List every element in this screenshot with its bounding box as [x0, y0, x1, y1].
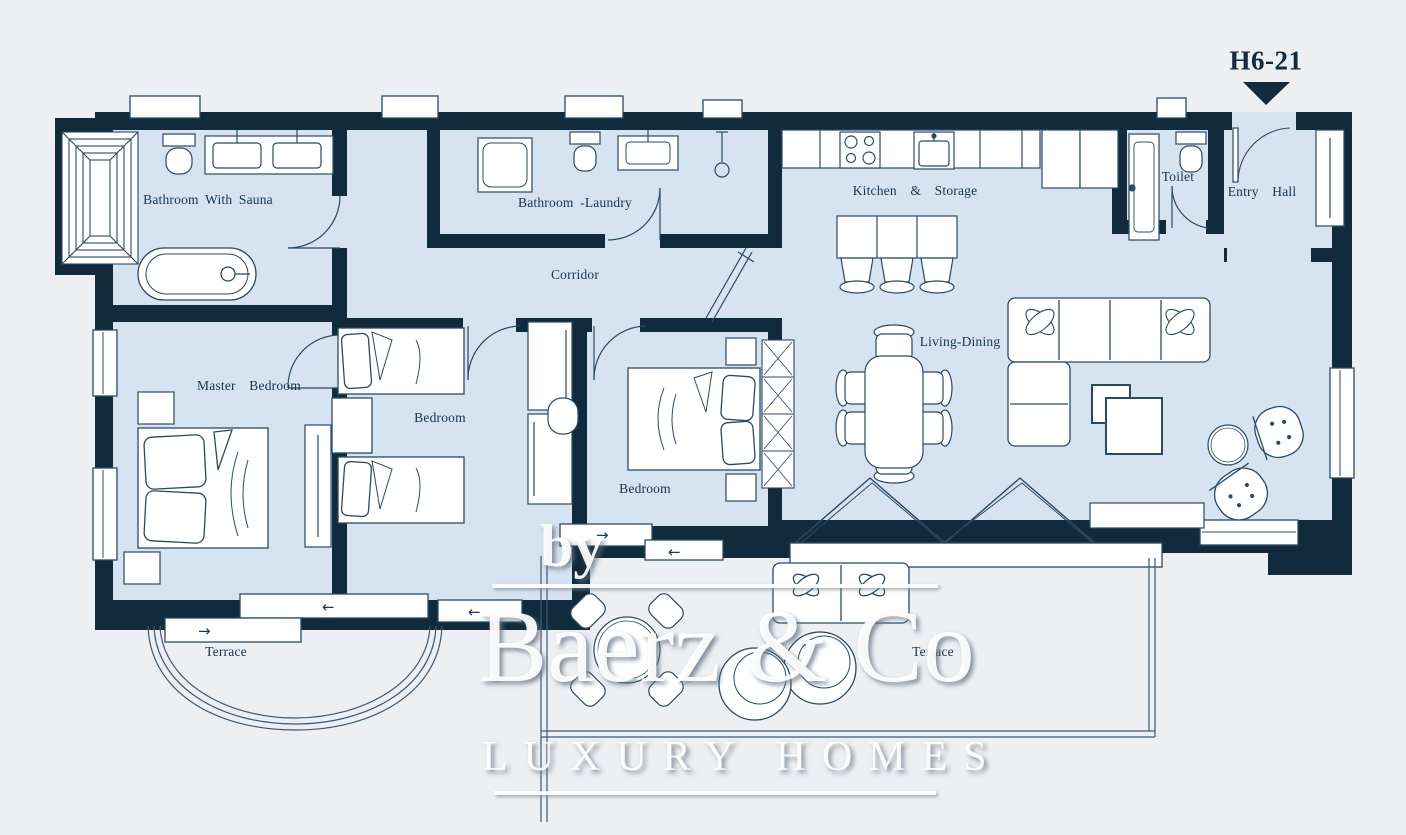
sauna-benches — [62, 132, 138, 264]
kitchen-island — [837, 216, 957, 293]
watermark-brand: Baerz & Co — [478, 592, 958, 701]
stove — [840, 132, 880, 168]
watermark-rule-top — [492, 584, 938, 588]
room-label-kitchen-storage: Kitchen & Storage — [853, 183, 978, 199]
laundry-sink — [618, 130, 678, 170]
unit-marker-triangle — [1243, 82, 1290, 105]
desk-chair — [548, 398, 578, 434]
laundry-toilet — [570, 132, 600, 171]
room-label-master-bedroom: Master Bedroom — [197, 378, 301, 394]
washer — [478, 138, 532, 192]
double-bed — [628, 368, 760, 470]
arrow-left: ← — [668, 543, 681, 561]
room-label-bathroom-sauna: Bathroom With Sauna — [143, 192, 273, 208]
kitchen-sink — [914, 132, 954, 169]
double-vanity — [205, 130, 333, 174]
room-label-corridor: Corridor — [551, 267, 599, 283]
x-wardrobe — [762, 340, 794, 488]
side-table — [1208, 425, 1248, 465]
entry-closet — [1316, 130, 1344, 226]
watermark-by: by — [540, 512, 603, 581]
room-label-bathroom-laundry: Bathroom -Laundry — [518, 195, 632, 211]
twin-nightstand — [332, 398, 372, 453]
room-label-entry-hall: Entry Hall — [1228, 184, 1297, 200]
toilet-fixture — [163, 134, 195, 174]
dining-table — [865, 356, 923, 468]
floor-plan-canvas: → ← ← → ← — [0, 0, 1406, 835]
room-label-terrace-left: Terrace — [205, 644, 247, 660]
sideboard — [1090, 503, 1204, 528]
master-wardrobe — [305, 425, 331, 547]
room-label-bedroom-2: Bedroom — [619, 481, 671, 497]
master-bed — [138, 428, 268, 548]
arrow-left: ← — [322, 598, 335, 616]
arrow-right: → — [198, 622, 211, 640]
room-label-bedroom-1: Bedroom — [414, 410, 466, 426]
watermark-rule-bottom — [494, 791, 936, 795]
room-label-living-dining: Living-Dining — [920, 334, 1001, 350]
unit-label: H6-21 — [1230, 46, 1303, 77]
bathtub — [138, 248, 256, 300]
watermark-tagline: LUXURY HOMES — [482, 733, 952, 781]
floor-plan-page: → ← ← → ← — [0, 0, 1406, 835]
room-label-toilet: Toilet — [1162, 169, 1195, 185]
